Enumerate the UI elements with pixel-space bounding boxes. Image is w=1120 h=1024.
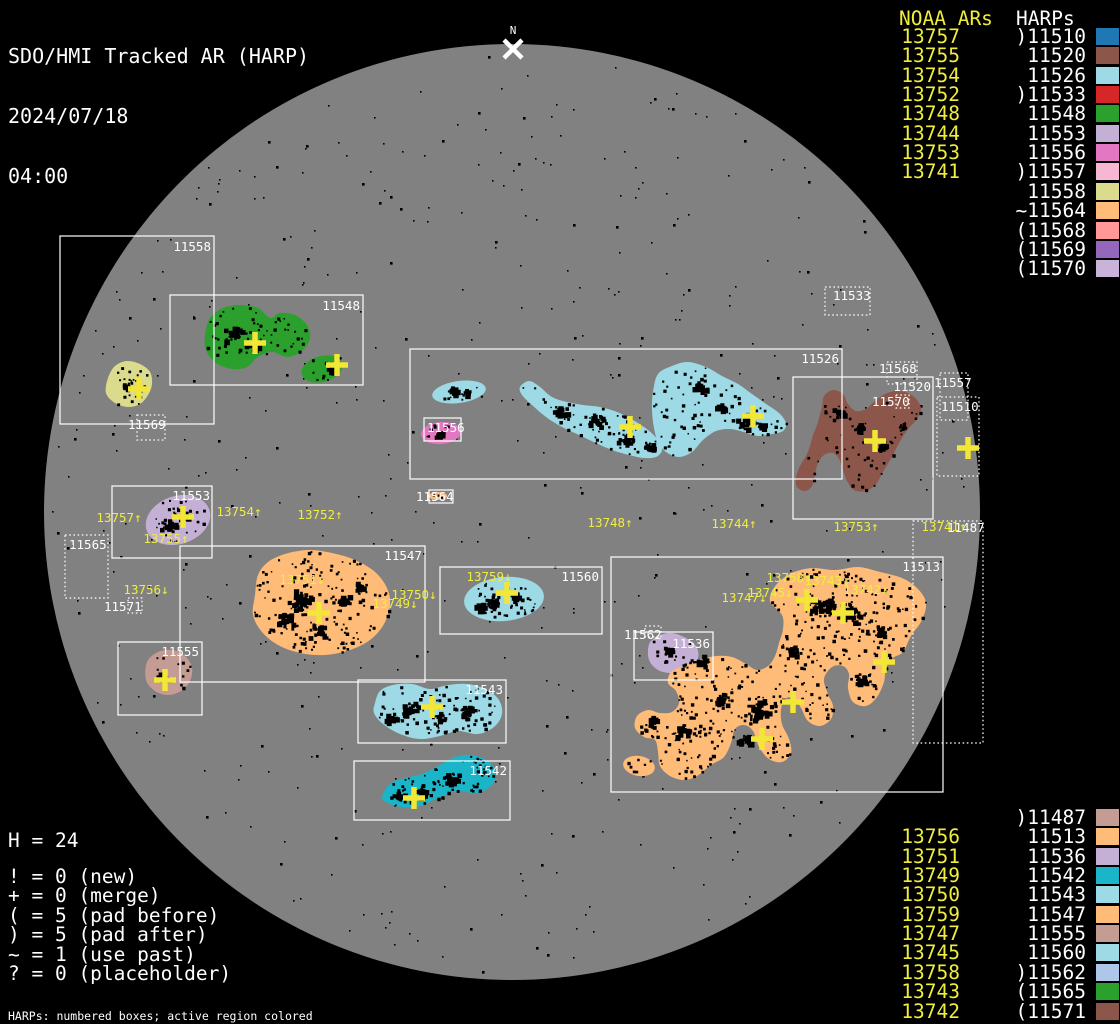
legend-row: 1375311556 <box>880 143 1120 162</box>
legend-row: 1374711555 <box>880 924 1120 943</box>
legend-row: (11570 <box>880 259 1120 278</box>
harp-box-label-11558: 11558 <box>173 239 211 254</box>
harp-color-swatch <box>1096 886 1119 903</box>
status-flag-line: ) = 5 (pad after) <box>8 925 231 944</box>
noaa-ar-number: 13757 <box>880 27 960 46</box>
harp-number: 11548 <box>960 104 1086 123</box>
harp-number: 11543 <box>960 885 1086 904</box>
legend-row: 13757)11510 <box>880 27 1120 46</box>
harp-box-label-11548: 11548 <box>322 298 360 313</box>
harp-box-label-11526: 11526 <box>801 351 839 366</box>
harp-number: 11558 <box>960 182 1086 201</box>
harp-number: 11513 <box>960 827 1086 846</box>
harp-color-swatch <box>1096 809 1119 826</box>
noaa-ar-number: 13748 <box>880 104 960 123</box>
noaa-ar-number: 13745 <box>880 943 960 962</box>
harp-box-label-11556: 11556 <box>427 420 465 435</box>
harp-box-label-11553: 11553 <box>172 488 210 503</box>
harp-number: )11510 <box>960 27 1086 46</box>
harp-box-label-11560: 11560 <box>561 569 599 584</box>
harp-number: ~11564 <box>960 201 1086 220</box>
noaa-ar-disk-label: 13752↑ <box>297 507 342 522</box>
noaa-ar-number: 13751 <box>880 847 960 866</box>
legend-row: 1375411526 <box>880 66 1120 85</box>
harp-box-label-11565: 11565 <box>69 537 107 552</box>
footnote-harps: HARPs: numbered boxes; active region col… <box>8 1011 410 1022</box>
noaa-ar-number: 13744 <box>880 124 960 143</box>
footnotes: HARPs: numbered boxes; active region col… <box>8 989 410 1024</box>
harp-color-swatch <box>1096 222 1119 239</box>
harp-box-label-11536: 11536 <box>672 636 710 651</box>
noaa-ar-disk-label: 13742↓ <box>843 582 888 597</box>
noaa-ar-disk-label: 13756↓ <box>123 582 168 597</box>
noaa-ar-disk-label: 13754↑ <box>216 504 261 519</box>
noaa-ar-disk-label: 13755↑ <box>143 531 188 546</box>
harp-color-swatch <box>1096 144 1119 161</box>
harp-number: (11565 <box>960 982 1086 1001</box>
harp-number: (11568 <box>960 221 1086 240</box>
harp-color-swatch <box>1096 202 1119 219</box>
status-flag-line: ? = 0 (placeholder) <box>8 964 231 983</box>
legend-row: 1374511560 <box>880 943 1120 962</box>
legend-row: 1375111536 <box>880 847 1120 866</box>
harp-color-swatch <box>1096 944 1119 961</box>
harp-box-label-11547: 11547 <box>384 548 422 563</box>
noaa-ar-number: 13743 <box>880 982 960 1001</box>
legend-row: 1375611513 <box>880 827 1120 846</box>
legend-row: 13741)11557 <box>880 162 1120 181</box>
legend-row: 1374811548 <box>880 104 1120 123</box>
harp-legend-bottom-right: )114871375611513137511153613749115421375… <box>880 808 1120 1024</box>
harp-number: )11487 <box>960 808 1086 827</box>
title-block: SDO/HMI Tracked AR (HARP) 2024/07/18 04:… <box>8 6 309 226</box>
harp-color-swatch <box>1096 105 1119 122</box>
harp-box-label-11520: 11520 <box>893 379 931 394</box>
harp-box-label-11543: 11543 <box>465 682 503 697</box>
noaa-ar-disk-label: 13753↑ <box>833 519 878 534</box>
legend-row: )11487 <box>880 808 1120 827</box>
harp-color-swatch <box>1096 86 1119 103</box>
harp-number: 11542 <box>960 866 1086 885</box>
harp-color-swatch <box>1096 867 1119 884</box>
legend-row: 11558 <box>880 182 1120 201</box>
harp-color-swatch <box>1096 828 1119 845</box>
noaa-ar-disk-label: 13748↑ <box>587 515 632 530</box>
harp-number: 11555 <box>960 924 1086 943</box>
noaa-ar-number: 13752 <box>880 85 960 104</box>
harp-box-label-11570: 11570 <box>872 394 910 409</box>
noaa-ar-number: 13759 <box>880 905 960 924</box>
harp-color-swatch <box>1096 47 1119 64</box>
noaa-ar-disk-label: 13744↑ <box>711 516 756 531</box>
legend-row: (11569 <box>880 240 1120 259</box>
noaa-ar-number: 13747 <box>880 924 960 943</box>
harp-number: (11571 <box>960 1002 1086 1021</box>
harp-color-swatch <box>1096 28 1119 45</box>
noaa-ar-number: 13750 <box>880 885 960 904</box>
harp-color-swatch <box>1096 1003 1119 1020</box>
noaa-ar-disk-label: 13745↓ <box>747 585 792 600</box>
harp-number: 11526 <box>960 66 1086 85</box>
noaa-ar-disk-label: 13749↓ <box>372 596 417 611</box>
noaa-ar-disk-label: 13751↓ <box>279 572 324 587</box>
harp-count: H = 24 <box>8 829 78 852</box>
noaa-ar-disk-label: 13759↓ <box>466 569 511 584</box>
harp-number: 11556 <box>960 143 1086 162</box>
noaa-ar-disk-label: 13741↑ <box>921 519 966 534</box>
harp-color-swatch <box>1096 125 1119 142</box>
noaa-ar-disk-label: 13757↑ <box>96 510 141 525</box>
harp-color-swatch <box>1096 260 1119 277</box>
legend-row: 13743(11565 <box>880 982 1120 1001</box>
legend-row: 1375011543 <box>880 885 1120 904</box>
harp-box-label-11510: 11510 <box>941 399 979 414</box>
harp-box-label-11533: 11533 <box>833 288 871 303</box>
noaa-ar-number: 13741 <box>880 162 960 181</box>
harp-box-label-11562: 11562 <box>624 627 662 642</box>
status-flag-legend: ! = 0 (new)+ = 0 (merge)( = 5 (pad befor… <box>8 867 231 983</box>
noaa-ar-number: 13756 <box>880 827 960 846</box>
harp-box-label-11571: 11571 <box>104 599 142 614</box>
noaa-ar-number: 13755 <box>880 46 960 65</box>
harp-number: )11533 <box>960 85 1086 104</box>
harp-color-swatch <box>1096 964 1119 981</box>
noaa-ar-number: 13758 <box>880 963 960 982</box>
harp-color-swatch <box>1096 983 1119 1000</box>
harp-box-label-11542: 11542 <box>469 763 507 778</box>
harp-number: 11536 <box>960 847 1086 866</box>
legend-row: 13742(11571 <box>880 1002 1120 1021</box>
sdo-hmi-harp-visualization: 1155811548115691152611556115641153311568… <box>0 0 1120 1024</box>
legend-row: ~11564 <box>880 201 1120 220</box>
noaa-ar-number: 13754 <box>880 66 960 85</box>
harp-color-swatch <box>1096 906 1119 923</box>
status-flag-line: + = 0 (merge) <box>8 886 231 905</box>
noaa-ar-number: 13742 <box>880 1002 960 1021</box>
harp-legend-top-right: 13757)115101375511520137541152613752)115… <box>880 27 1120 287</box>
page-title: SDO/HMI Tracked AR (HARP) <box>8 46 309 66</box>
harp-box-label-11513: 11513 <box>902 559 940 574</box>
noaa-ar-number: 13753 <box>880 143 960 162</box>
legend-row: 1375911547 <box>880 905 1120 924</box>
harp-color-swatch <box>1096 848 1119 865</box>
harp-number: (11570 <box>960 259 1086 278</box>
harp-number: )11562 <box>960 963 1086 982</box>
harp-number: 11553 <box>960 124 1086 143</box>
legend-row: (11568 <box>880 221 1120 240</box>
legend-row: 13758)11562 <box>880 963 1120 982</box>
harp-color-swatch <box>1096 241 1119 258</box>
harp-number: 11560 <box>960 943 1086 962</box>
noaa-ar-number: 13749 <box>880 866 960 885</box>
harp-box-label-11569: 11569 <box>128 417 166 432</box>
legend-row: 1375511520 <box>880 46 1120 65</box>
harp-color-swatch <box>1096 67 1119 84</box>
north-pole-label: N <box>510 24 517 37</box>
harp-number: 11520 <box>960 46 1086 65</box>
harp-box-label-11568: 11568 <box>879 361 917 376</box>
harp-number: )11557 <box>960 162 1086 181</box>
harp-color-swatch <box>1096 183 1119 200</box>
legend-row: 1374911542 <box>880 866 1120 885</box>
observation-time: 04:00 <box>8 166 309 186</box>
harp-box-label-11564: 11564 <box>416 489 454 504</box>
legend-row: 13752)11533 <box>880 85 1120 104</box>
harp-box-label-11557: 11557 <box>934 375 972 390</box>
harp-color-swatch <box>1096 925 1119 942</box>
legend-row: 1374411553 <box>880 124 1120 143</box>
harp-number: 11547 <box>960 905 1086 924</box>
harp-box-label-11555: 11555 <box>161 644 199 659</box>
harp-number: (11569 <box>960 240 1086 259</box>
observation-date: 2024/07/18 <box>8 106 309 126</box>
harp-color-swatch <box>1096 163 1119 180</box>
